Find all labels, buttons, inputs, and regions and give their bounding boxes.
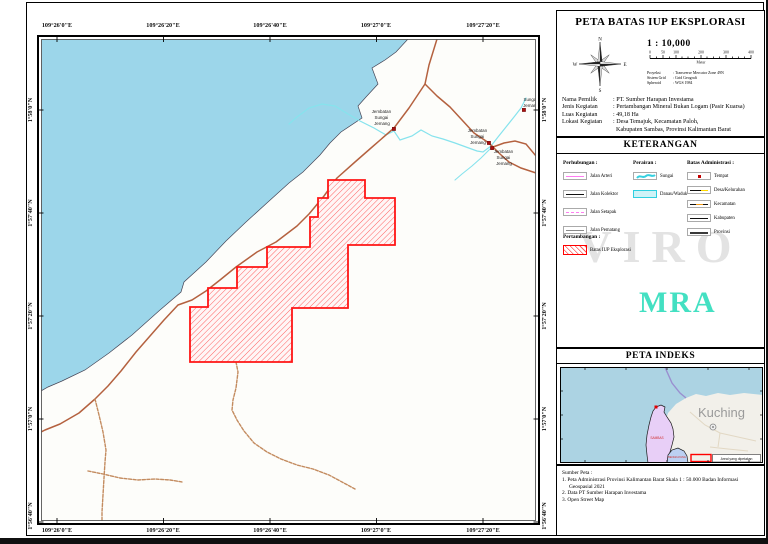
coordinate-label-bottom: 109°26'40"E bbox=[240, 527, 300, 534]
source-item: 3. Open Street Map bbox=[562, 497, 759, 504]
compass-s: S bbox=[599, 89, 602, 93]
sungai-swatch bbox=[633, 172, 657, 180]
inset-region-label-bengkayang: BENGKAYANG bbox=[668, 455, 686, 459]
legend-header: KETERANGAN bbox=[556, 137, 765, 154]
legend-label: Batas IUP Eksplorasi bbox=[590, 248, 631, 253]
bridge-marker-1 bbox=[392, 127, 395, 130]
coordinate-label-top: 109°27'0"E bbox=[346, 22, 406, 29]
river-label: Sungai Jemang bbox=[523, 97, 539, 108]
legend-title: KETERANGAN bbox=[557, 138, 764, 153]
jalan-pematang-swatch bbox=[563, 226, 587, 234]
jalan-arteri-swatch bbox=[563, 172, 587, 180]
map-title: PETA BATAS IUP EKSPLORASI bbox=[557, 16, 764, 28]
svg-text:50: 50 bbox=[661, 51, 665, 55]
provinsi-swatch bbox=[687, 228, 711, 236]
coordinate-label-bottom: 109°26'0"E bbox=[27, 527, 87, 534]
svg-text:400: 400 bbox=[748, 51, 754, 55]
scale-bar: 0 50 100 200 300 400 bbox=[647, 49, 759, 65]
coordinate-label-top: 109°26'40"E bbox=[240, 22, 300, 29]
coordinate-label-bottom: 109°27'20"E bbox=[453, 527, 513, 534]
legend-group-title: Perairan : bbox=[633, 160, 683, 166]
index-title: PETA INDEKS bbox=[557, 349, 764, 363]
river-marker bbox=[522, 108, 525, 111]
projection-info: Proyeksi: Transverse Mercator Zone 49N S… bbox=[647, 71, 761, 85]
legend-label: Jalan Kolektor bbox=[590, 192, 618, 197]
scale-text: 1 : 10,000 bbox=[647, 39, 761, 49]
coordinate-label-left: 1°57'40"N bbox=[27, 188, 35, 238]
map-sheet: Jembatan Sungai Jemang Jembatan Sungai J… bbox=[0, 0, 766, 538]
info-value: : Pertambangan Mineral Bukan Logam (Pasi… bbox=[613, 104, 745, 111]
source-item: Geospasial 2021 bbox=[562, 484, 759, 491]
legend-group-title: Batas Administrasi : bbox=[687, 160, 762, 166]
info-value: Kabupaten Sambas, Provinsi Kalimantan Ba… bbox=[613, 127, 731, 134]
coordinate-label-bottom: 109°27'0"E bbox=[346, 527, 406, 534]
coordinate-label-bottom: 109°26'20"E bbox=[133, 527, 193, 534]
sources-section: Sumber Peta : 1. Peta Administrasi Provi… bbox=[556, 465, 765, 536]
bridge-marker-2 bbox=[487, 141, 490, 144]
svg-text:300: 300 bbox=[723, 51, 729, 55]
scale-block: 1 : 10,000 0 50 100 200 300 400 bbox=[647, 39, 761, 85]
legend-label: Sungai bbox=[660, 174, 673, 179]
info-label: Luas Kegiatan bbox=[562, 112, 613, 119]
info-label: Lokasi Kegiatan bbox=[562, 119, 613, 126]
kecamatan-swatch bbox=[687, 200, 711, 208]
compass-w: W bbox=[573, 63, 578, 68]
iup-boundary-swatch bbox=[563, 245, 587, 255]
index-header: PETA INDEKS bbox=[556, 348, 765, 364]
legend-label: Jalan Setapak bbox=[590, 210, 616, 215]
sources-title: Sumber Peta : bbox=[562, 470, 759, 477]
watermark-mra: MRA bbox=[639, 288, 717, 318]
main-map: Jembatan Sungai Jemang Jembatan Sungai J… bbox=[37, 35, 540, 525]
coordinate-label-left: 1°57'0"N bbox=[27, 394, 35, 444]
svg-text:100: 100 bbox=[673, 51, 679, 55]
legend-label: Jalan Pematang bbox=[590, 228, 620, 233]
info-label: Nama Pemilik bbox=[562, 97, 613, 104]
info-panel: PETA BATAS IUP EKSPLORASI N E S W 1 : 10… bbox=[556, 10, 765, 536]
projection-label: Spheroid bbox=[647, 81, 673, 86]
legend-label: Desa/Kelurahan bbox=[714, 188, 745, 193]
compass-e: E bbox=[623, 63, 626, 68]
bridge-label-3: Jembatan Sungai Jemang bbox=[494, 149, 515, 166]
coordinate-label-right: 1°57'20"N bbox=[541, 291, 549, 341]
coordinate-label-left: 1°58'0"N bbox=[27, 85, 35, 135]
index-map: Kuching SAMBAS BENGKAYANG Areal yang dip… bbox=[560, 367, 763, 463]
kabupaten-swatch bbox=[687, 214, 711, 222]
inset-region-label-sambas: SAMBAS bbox=[650, 436, 663, 440]
source-item: 2. Data PT Sumber Harapan Investama bbox=[562, 490, 759, 497]
legend-label: Tempat bbox=[714, 174, 728, 179]
inset-city-marker-dot bbox=[712, 426, 714, 428]
inset-city-label: Kuching bbox=[698, 405, 745, 420]
legend-label: Kabupaten bbox=[714, 216, 735, 221]
legend-group-title: Perhubungan : bbox=[563, 160, 633, 166]
bridge-label-1: Jembatan Sungai Jemang bbox=[372, 109, 393, 126]
scale-unit: Meter bbox=[696, 61, 706, 65]
coordinate-label-left: 1°57'20"N bbox=[27, 291, 35, 341]
source-item: 1. Peta Administrasi Provinsi Kalimantan… bbox=[562, 477, 759, 484]
tempat-swatch bbox=[687, 172, 711, 180]
index-map-section: Kuching SAMBAS BENGKAYANG Areal yang dip… bbox=[556, 363, 765, 465]
info-value: : Desa Temajuk, Kecamatan Paloh, bbox=[613, 119, 698, 126]
legend-label: Danau/Waduk bbox=[660, 192, 687, 197]
danau-swatch bbox=[633, 190, 657, 198]
info-value: : 49,18 Ha bbox=[613, 112, 639, 119]
coordinate-label-right: 1°58'0"N bbox=[541, 85, 549, 135]
jalan-setapak-swatch bbox=[563, 208, 587, 216]
jalan-kolektor-swatch bbox=[563, 190, 587, 198]
legend-section: VIRO MRA Perhubungan : Jalan Arteri Jala… bbox=[556, 153, 765, 348]
info-label bbox=[562, 127, 613, 134]
north-arrow: N E S W bbox=[571, 35, 629, 93]
coordinate-label-right: 1°56'40"N bbox=[541, 491, 549, 541]
svg-text:200: 200 bbox=[698, 51, 704, 55]
svg-text:0: 0 bbox=[649, 51, 651, 55]
compass-n: N bbox=[598, 38, 602, 43]
map-document: { "map": { "coords_x": ["109°26'0\"E", "… bbox=[0, 0, 768, 544]
legend-group-title: Pertambangan : bbox=[563, 234, 633, 240]
legend-label: Provinsi bbox=[714, 230, 730, 235]
projection-value: : WGS 1984 bbox=[673, 81, 692, 86]
coordinate-label-top: 109°27'20"E bbox=[453, 22, 513, 29]
info-label: Jenis Kegiatan bbox=[562, 104, 613, 111]
inset-area-dot bbox=[655, 406, 658, 409]
legend-label: Kecamatan bbox=[714, 202, 736, 207]
coordinate-label-top: 109°26'0"E bbox=[27, 22, 87, 29]
coordinate-label-left: 1°56'40"N bbox=[27, 491, 35, 541]
coordinate-label-right: 1°57'40"N bbox=[541, 188, 549, 238]
inset-areal-label: Areal yang dipetakan bbox=[721, 457, 753, 461]
bridge-label-2: Jembatan Sungai Jemang bbox=[468, 128, 489, 145]
desa-swatch bbox=[687, 186, 711, 194]
legend-label: Jalan Arteri bbox=[590, 174, 612, 179]
title-section: PETA BATAS IUP EKSPLORASI N E S W 1 : 10… bbox=[556, 10, 765, 137]
project-info: Nama Pemilik: PT. Sumber Harapan Investa… bbox=[562, 97, 762, 134]
coordinate-label-top: 109°26'20"E bbox=[133, 22, 193, 29]
coordinate-label-right: 1°57'0"N bbox=[541, 394, 549, 444]
